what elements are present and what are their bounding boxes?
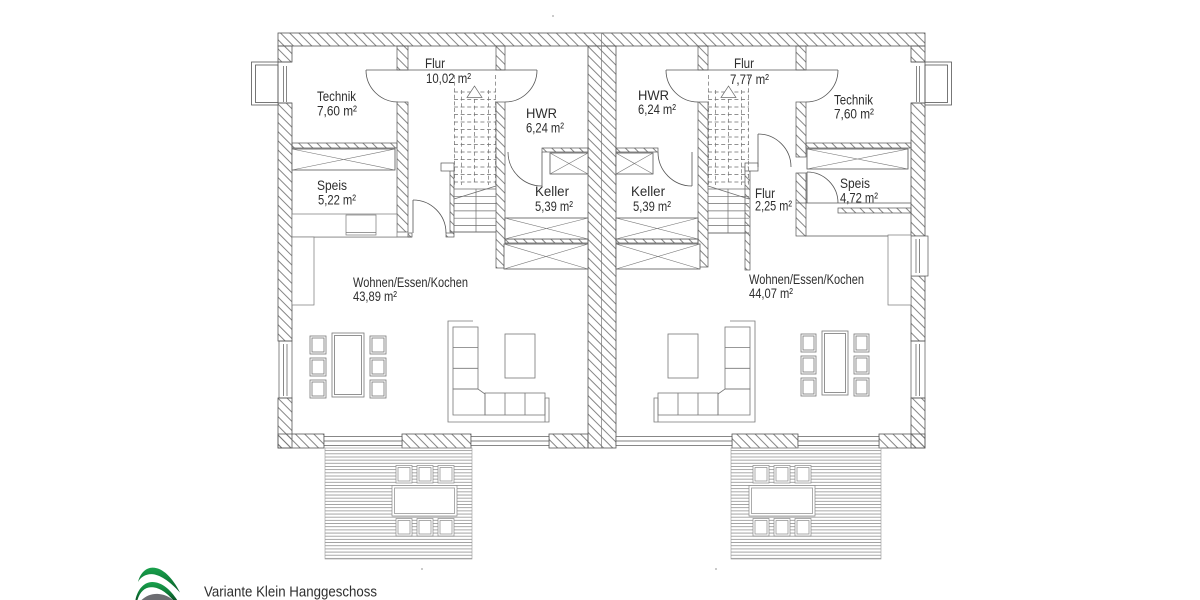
svg-text:Flur: Flur — [425, 56, 445, 72]
svg-text:6,24 m²: 6,24 m² — [638, 102, 676, 118]
svg-text:7,60 m²: 7,60 m² — [317, 104, 357, 120]
svg-text:6,24 m²: 6,24 m² — [526, 121, 564, 137]
svg-text:4,72 m²: 4,72 m² — [840, 191, 878, 207]
svg-text:5,22 m²: 5,22 m² — [318, 193, 356, 209]
svg-text:7,60 m²: 7,60 m² — [834, 107, 874, 123]
svg-text:Variante Klein Hanggeschoss: Variante Klein Hanggeschoss — [204, 585, 377, 600]
svg-text:Keller: Keller — [535, 184, 569, 200]
svg-text:Flur: Flur — [734, 56, 754, 72]
svg-text:10,02 m²: 10,02 m² — [426, 71, 471, 87]
svg-text:5,39 m²: 5,39 m² — [535, 199, 573, 215]
svg-text:43,89 m²: 43,89 m² — [353, 289, 397, 305]
svg-text:Keller: Keller — [631, 184, 665, 200]
svg-text:7,77 m²: 7,77 m² — [730, 72, 769, 88]
svg-text:5,39 m²: 5,39 m² — [633, 199, 671, 215]
svg-text:44,07 m²: 44,07 m² — [749, 286, 793, 302]
svg-text:2,25 m²: 2,25 m² — [755, 199, 792, 215]
